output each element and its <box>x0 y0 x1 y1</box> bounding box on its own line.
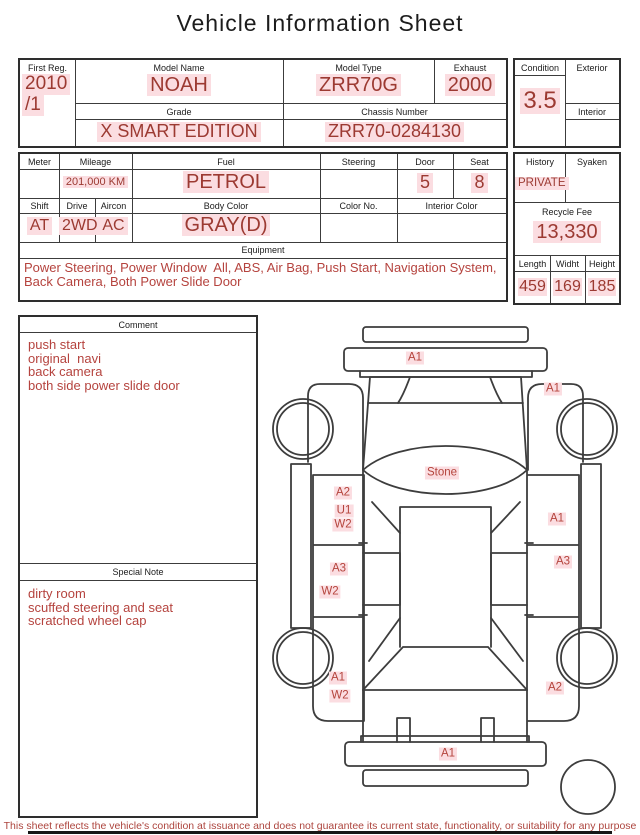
seat-label: Seat <box>453 156 506 168</box>
spare-wheel <box>561 760 615 814</box>
exhaust-label: Exhaust <box>434 62 506 74</box>
first-reg-value: 2010 /1 <box>22 74 74 116</box>
rear-hatch <box>363 618 527 742</box>
vehicle-summary-table: First Reg. Model Name Model Type Exhaust… <box>18 58 508 148</box>
history-label: History <box>515 156 565 168</box>
rear-bumper-shape <box>345 736 546 786</box>
width-label: Widht <box>550 258 585 270</box>
exhaust-value: 2000 <box>434 74 506 96</box>
divider <box>515 75 565 76</box>
damage-marker-right-slide-door: A3 <box>554 556 572 569</box>
drive-label: Drive <box>59 200 95 212</box>
chassis-number-label: Chassis Number <box>283 106 506 118</box>
history-value: PRIVATE <box>515 177 565 190</box>
damage-marker-left-slide-door: W2 <box>319 586 340 599</box>
special-note-lines: dirty room scuffed steering and seat scr… <box>28 587 250 628</box>
drive-value: 2WD <box>59 217 95 235</box>
equipment-value: Power Steering, Power Window All, ABS, A… <box>24 261 502 288</box>
seat-value: 8 <box>453 173 506 193</box>
aircon-value: AC <box>95 217 132 235</box>
car-damage-diagram: A1A1StoneA2U1W2A1A3A3W2A1W2A2A1 <box>265 318 637 818</box>
damage-marker-left-rear-fender: A1 <box>329 672 347 685</box>
car-outline-svg <box>265 318 637 818</box>
page-title: Vehicle Information Sheet <box>0 10 640 37</box>
shift-label: Shift <box>20 200 59 212</box>
damage-marker-front-bumper: A1 <box>406 352 424 365</box>
divider <box>20 258 506 259</box>
condition-table: Condition Exterior Interior 3.5 <box>513 58 621 148</box>
damage-marker-left-front-door: A2 <box>334 487 352 500</box>
aircon-label: Aircon <box>95 200 132 212</box>
door-value: 5 <box>397 173 453 193</box>
comment-line: push start <box>28 338 250 352</box>
damage-marker-left-front-door: W2 <box>332 519 353 532</box>
special-note-line: scratched wheel cap <box>28 614 250 628</box>
equipment-label: Equipment <box>20 244 506 256</box>
condition-label: Condition <box>515 62 565 74</box>
divider <box>515 271 619 272</box>
fuel-label: Fuel <box>132 156 320 168</box>
damage-marker-rear-bumper: A1 <box>439 748 457 761</box>
divider <box>20 332 256 333</box>
length-value: 459 <box>515 278 550 296</box>
damage-marker-left-front-door: U1 <box>335 505 354 518</box>
divider <box>20 242 506 243</box>
syaken-label: Syaken <box>565 156 619 168</box>
grade-label: Grade <box>75 106 283 118</box>
steering-label: Steering <box>320 156 397 168</box>
front-bumper-shape <box>344 327 547 377</box>
special-note-header: Special Note <box>20 566 256 578</box>
divider <box>20 580 256 581</box>
comment-line: back camera <box>28 365 250 379</box>
comment-box: Comment push start original navi back ca… <box>18 315 258 818</box>
recycle-fee-value: 13,330 <box>515 221 619 243</box>
divider <box>20 169 506 170</box>
divider <box>20 198 506 199</box>
damage-marker-left-slide-door: A3 <box>330 563 348 576</box>
damage-marker-right-front-door: A1 <box>548 513 566 526</box>
shift-value: AT <box>20 217 59 235</box>
body-color-value: GRAY(D) <box>132 214 320 236</box>
body-color-label: Body Color <box>132 200 320 212</box>
divider <box>565 103 619 104</box>
first-reg-month: /1 <box>22 95 44 116</box>
comment-header: Comment <box>20 319 256 331</box>
comment-line: original navi <box>28 352 250 366</box>
history-fee-table: History Syaken PRIVATE Recycle Fee 13,33… <box>513 152 621 305</box>
door-label: Door <box>397 156 453 168</box>
width-value: 169 <box>550 278 585 296</box>
damage-marker-windshield: Stone <box>425 467 459 480</box>
mileage-value: 201,000 KM <box>59 176 132 188</box>
damage-marker-right-front-fender: A1 <box>544 383 562 396</box>
mileage-label: Mileage <box>59 156 132 168</box>
special-note-line: dirty room <box>28 587 250 601</box>
comment-line: both side power slide door <box>28 379 250 393</box>
model-type-label: Model Type <box>283 62 434 74</box>
fuel-value: PETROL <box>132 171 320 193</box>
comment-lines: push start original navi back camera bot… <box>28 338 250 392</box>
model-name-label: Model Name <box>75 62 283 74</box>
special-note-line: scuffed steering and seat <box>28 601 250 615</box>
meter-label: Meter <box>20 156 59 168</box>
bottom-edge-line <box>28 831 612 834</box>
divider <box>75 103 506 104</box>
first-reg-year: 2010 <box>22 74 70 95</box>
length-label: Length <box>515 258 550 270</box>
interior-label: Interior <box>565 106 619 118</box>
color-no-label: Color No. <box>320 200 397 212</box>
divider <box>515 255 619 256</box>
model-type-value: ZRR70G <box>283 74 434 96</box>
divider <box>515 202 619 203</box>
height-value: 185 <box>585 278 619 296</box>
vehicle-information-sheet: Vehicle Information Sheet First Reg. Mod… <box>0 0 640 835</box>
height-label: Height <box>585 258 619 270</box>
vehicle-details-table: Meter Mileage Fuel Steering Door Seat 20… <box>18 152 508 302</box>
damage-marker-right-rear-fender: A2 <box>546 682 564 695</box>
exterior-label: Exterior <box>565 62 619 74</box>
chassis-number-value: ZRR70-0284130 <box>283 122 506 142</box>
condition-value: 3.5 <box>515 88 565 114</box>
grade-value: X SMART EDITION <box>75 122 283 142</box>
divider <box>565 119 619 120</box>
recycle-fee-label: Recycle Fee <box>515 206 619 218</box>
interior-color-label: Interior Color <box>397 200 506 212</box>
divider <box>20 563 256 564</box>
model-name-value: NOAH <box>75 74 283 96</box>
cabin-roof <box>359 470 533 742</box>
divider <box>75 119 506 120</box>
damage-marker-left-rear-fender: W2 <box>329 690 350 703</box>
